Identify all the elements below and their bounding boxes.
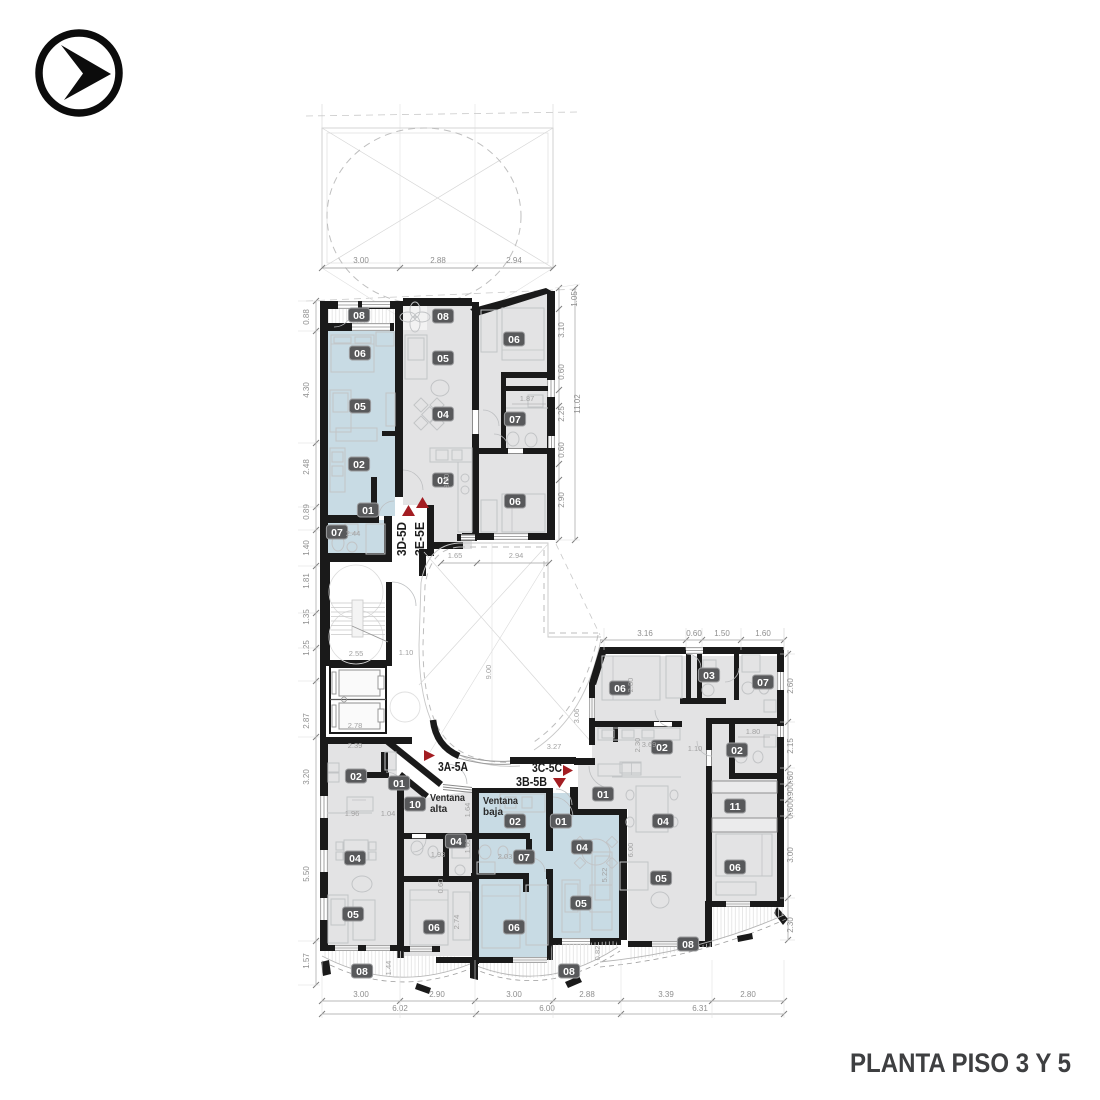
svg-text:06: 06 bbox=[729, 862, 741, 874]
svg-text:2.80: 2.80 bbox=[626, 678, 635, 693]
svg-text:2.78: 2.78 bbox=[348, 721, 363, 730]
svg-text:2.03: 2.03 bbox=[498, 852, 513, 861]
svg-text:06: 06 bbox=[354, 348, 366, 360]
svg-text:01: 01 bbox=[362, 505, 374, 517]
svg-text:04: 04 bbox=[450, 836, 462, 848]
svg-text:02: 02 bbox=[353, 459, 365, 471]
svg-text:06: 06 bbox=[428, 922, 440, 934]
svg-text:3.69: 3.69 bbox=[642, 740, 657, 749]
svg-text:02: 02 bbox=[656, 742, 668, 754]
svg-text:08: 08 bbox=[437, 311, 449, 323]
svg-text:0.82: 0.82 bbox=[593, 946, 602, 961]
svg-text:3.00: 3.00 bbox=[353, 990, 369, 999]
svg-text:11: 11 bbox=[729, 801, 740, 813]
svg-text:1.96: 1.96 bbox=[345, 809, 360, 818]
svg-text:02: 02 bbox=[731, 745, 743, 757]
svg-text:06: 06 bbox=[614, 683, 626, 695]
svg-text:3.16: 3.16 bbox=[637, 629, 653, 638]
svg-text:1.80: 1.80 bbox=[746, 727, 761, 736]
svg-text:11.02: 11.02 bbox=[573, 394, 582, 414]
svg-text:0.89: 0.89 bbox=[302, 504, 311, 520]
svg-text:1.05: 1.05 bbox=[570, 291, 579, 307]
svg-text:1.50: 1.50 bbox=[714, 629, 730, 638]
svg-text:3.39: 3.39 bbox=[658, 990, 674, 999]
svg-text:2.80: 2.80 bbox=[740, 990, 756, 999]
svg-text:02: 02 bbox=[509, 816, 521, 828]
svg-text:1.10: 1.10 bbox=[688, 744, 703, 753]
svg-text:0.90: 0.90 bbox=[786, 787, 795, 803]
svg-text:1.44: 1.44 bbox=[384, 961, 393, 976]
svg-text:4.30: 4.30 bbox=[302, 382, 311, 398]
svg-text:3.00: 3.00 bbox=[506, 990, 522, 999]
svg-text:1.81: 1.81 bbox=[302, 573, 311, 589]
svg-text:3D-5D: 3D-5D bbox=[394, 522, 409, 556]
svg-text:02: 02 bbox=[350, 771, 362, 783]
svg-text:1.60: 1.60 bbox=[755, 629, 771, 638]
svg-text:alta: alta bbox=[430, 804, 448, 815]
svg-text:1.64: 1.64 bbox=[463, 803, 472, 818]
svg-text:2.88: 2.88 bbox=[430, 256, 446, 265]
svg-text:PLANTA PISO 3 Y 5: PLANTA PISO 3 Y 5 bbox=[850, 1048, 1071, 1078]
svg-text:9.00: 9.00 bbox=[484, 665, 493, 680]
svg-text:3.50: 3.50 bbox=[442, 474, 451, 489]
svg-text:01: 01 bbox=[555, 816, 567, 828]
svg-text:1.57: 1.57 bbox=[302, 953, 311, 969]
svg-text:06: 06 bbox=[509, 496, 521, 508]
svg-text:1.60: 1.60 bbox=[463, 839, 472, 854]
svg-text:2.30: 2.30 bbox=[786, 917, 795, 933]
svg-text:baja: baja bbox=[483, 807, 503, 818]
svg-text:6.00: 6.00 bbox=[626, 843, 635, 858]
svg-text:0.60: 0.60 bbox=[786, 803, 795, 819]
svg-text:5.50: 5.50 bbox=[302, 866, 311, 882]
svg-text:01: 01 bbox=[597, 789, 609, 801]
svg-text:0.60: 0.60 bbox=[557, 364, 566, 380]
svg-text:2.74: 2.74 bbox=[452, 915, 461, 930]
svg-text:2.30: 2.30 bbox=[633, 738, 642, 753]
svg-text:2.90: 2.90 bbox=[557, 492, 566, 508]
svg-text:3E-5E: 3E-5E bbox=[412, 522, 427, 556]
svg-text:1.04: 1.04 bbox=[381, 809, 396, 818]
svg-text:04: 04 bbox=[576, 842, 588, 854]
svg-text:05: 05 bbox=[437, 353, 449, 365]
svg-text:1.10: 1.10 bbox=[399, 648, 414, 657]
svg-text:3.10: 3.10 bbox=[557, 322, 566, 338]
svg-text:2.44: 2.44 bbox=[346, 529, 361, 538]
svg-text:08: 08 bbox=[356, 966, 368, 978]
svg-text:0.60: 0.60 bbox=[786, 771, 795, 787]
svg-text:6.31: 6.31 bbox=[692, 1004, 708, 1013]
svg-text:3.00: 3.00 bbox=[786, 847, 795, 863]
svg-text:04: 04 bbox=[349, 853, 361, 865]
svg-text:08: 08 bbox=[563, 966, 575, 978]
svg-text:2.94: 2.94 bbox=[509, 551, 524, 560]
svg-text:3.27: 3.27 bbox=[547, 742, 562, 751]
svg-text:1.87: 1.87 bbox=[520, 394, 535, 403]
svg-text:07: 07 bbox=[331, 527, 343, 539]
svg-text:2.88: 2.88 bbox=[579, 990, 595, 999]
svg-text:08: 08 bbox=[682, 939, 694, 951]
svg-text:03: 03 bbox=[703, 670, 715, 682]
svg-text:08: 08 bbox=[353, 310, 365, 322]
svg-text:0.60: 0.60 bbox=[557, 442, 566, 458]
svg-text:5.22: 5.22 bbox=[600, 868, 609, 883]
svg-text:3C-5C: 3C-5C bbox=[532, 761, 562, 775]
svg-text:2.94: 2.94 bbox=[506, 256, 522, 265]
svg-text:1.65: 1.65 bbox=[448, 551, 463, 560]
svg-text:2.87: 2.87 bbox=[302, 713, 311, 729]
svg-text:05: 05 bbox=[354, 401, 366, 413]
svg-text:04: 04 bbox=[437, 409, 449, 421]
svg-text:05: 05 bbox=[655, 873, 667, 885]
svg-text:2.25: 2.25 bbox=[557, 406, 566, 422]
svg-text:Ventana: Ventana bbox=[430, 793, 465, 804]
svg-text:3B-5B: 3B-5B bbox=[516, 775, 547, 789]
svg-text:07: 07 bbox=[509, 414, 521, 426]
svg-text:3.20: 3.20 bbox=[302, 769, 311, 785]
svg-text:2.55: 2.55 bbox=[349, 649, 364, 658]
svg-text:1.40: 1.40 bbox=[302, 540, 311, 556]
svg-text:06: 06 bbox=[508, 334, 520, 346]
svg-text:2.60: 2.60 bbox=[786, 678, 795, 694]
svg-text:1.93: 1.93 bbox=[431, 850, 446, 859]
svg-text:07: 07 bbox=[757, 677, 769, 689]
svg-text:01: 01 bbox=[393, 778, 405, 790]
svg-text:06: 06 bbox=[508, 922, 520, 934]
svg-text:05: 05 bbox=[575, 898, 587, 910]
svg-text:3.00: 3.00 bbox=[353, 256, 369, 265]
svg-text:3A-5A: 3A-5A bbox=[438, 760, 468, 774]
svg-text:07: 07 bbox=[518, 852, 530, 864]
svg-text:0.88: 0.88 bbox=[302, 309, 311, 325]
svg-text:2.39: 2.39 bbox=[348, 741, 363, 750]
svg-text:05: 05 bbox=[347, 909, 359, 921]
svg-text:2.90: 2.90 bbox=[429, 990, 445, 999]
svg-text:2.48: 2.48 bbox=[302, 459, 311, 475]
svg-text:10: 10 bbox=[409, 799, 421, 811]
svg-text:04: 04 bbox=[657, 816, 669, 828]
svg-text:2.15: 2.15 bbox=[786, 738, 795, 754]
svg-text:0.60: 0.60 bbox=[436, 879, 445, 894]
svg-text:Ventana: Ventana bbox=[483, 796, 518, 807]
svg-text:1.35: 1.35 bbox=[302, 609, 311, 625]
svg-text:3.06: 3.06 bbox=[572, 709, 581, 724]
svg-text:0.60: 0.60 bbox=[686, 629, 702, 638]
